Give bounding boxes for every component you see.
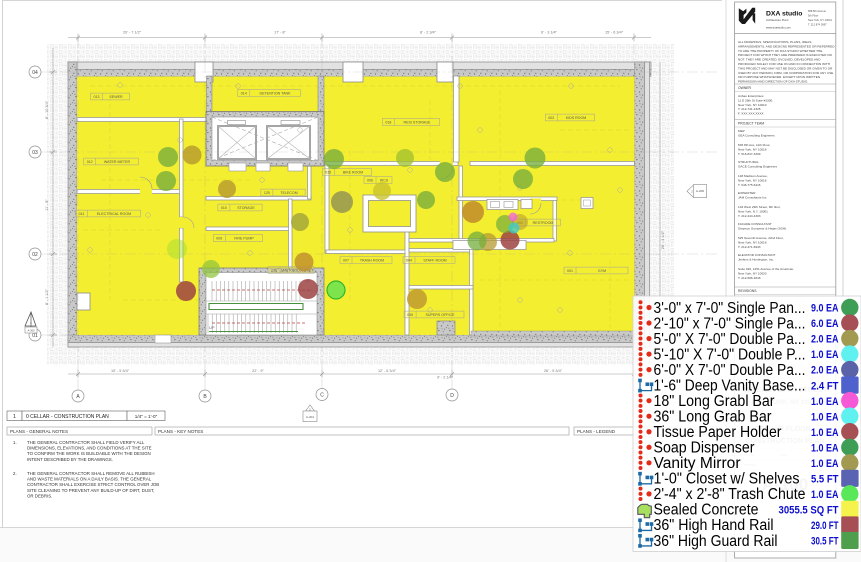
svg-text:FIRE PUMP: FIRE PUMP [234, 236, 254, 240]
svg-text:SITE CLEANING TO PREVENT ANY B: SITE CLEANING TO PREVENT ANY BUILD-UP OF… [27, 488, 154, 493]
svg-text:29.0 FT: 29.0 FT [811, 520, 839, 532]
svg-text:A-200: A-200 [696, 189, 705, 193]
svg-text:TRASH ROOM: TRASH ROOM [360, 258, 384, 262]
svg-text:26' - 5 3/4": 26' - 5 3/4" [544, 369, 563, 373]
svg-text:6'-0" X 7'-0" Double Pa...: 6'-0" X 7'-0" Double Pa... [654, 362, 806, 379]
svg-text:Vanity Mirror: Vanity Mirror [654, 455, 741, 472]
svg-text:Suite 920, 1251 Avenue of the: Suite 920, 1251 Avenue of the Americas, [738, 267, 794, 271]
svg-text:Anbau Enterprises: Anbau Enterprises [738, 94, 764, 98]
svg-text:PLANS - GENERAL NOTES: PLANS - GENERAL NOTES [10, 429, 68, 434]
svg-text:WCS: WCS [380, 178, 389, 182]
svg-text:PLANS - KEY NOTES: PLANS - KEY NOTES [158, 429, 203, 434]
svg-text:1.0 EA: 1.0 EA [811, 489, 839, 501]
svg-text:007: 007 [343, 258, 349, 262]
svg-text:Soap Dispenser: Soap Dispenser [654, 440, 755, 457]
svg-text:11' - 8": 11' - 8" [45, 199, 49, 211]
svg-text:014: 014 [241, 91, 247, 95]
svg-text:GYM: GYM [598, 269, 606, 273]
svg-text:1.0 EA: 1.0 EA [811, 442, 839, 454]
svg-text:525 Seventh Avenue, 22nd Floor: 525 Seventh Avenue, 22nd Floor, [738, 236, 784, 240]
svg-text:8' - 2 3/4": 8' - 2 3/4" [420, 31, 437, 35]
svg-text:018: 018 [385, 120, 391, 124]
svg-text:5th Floor: 5th Floor [808, 14, 818, 18]
svg-text:THE GENERAL CONTRACTOR SHALL R: THE GENERAL CONTRACTOR SHALL REMOVE ALL … [27, 471, 155, 476]
svg-text:868 8th Avenue: 868 8th Avenue [808, 9, 827, 13]
svg-text:STRUCTURAL: STRUCTURAL [738, 160, 759, 164]
svg-text:New York, NY 10001: New York, NY 10001 [808, 18, 832, 22]
svg-text:www.dxastudio.com: www.dxastudio.com [766, 26, 791, 30]
svg-text:2.0 EA: 2.0 EA [811, 334, 839, 346]
svg-text:22' - 9": 22' - 9" [252, 369, 264, 373]
svg-text:PROJECT TEAM: PROJECT TEAM [738, 122, 764, 126]
svg-text:ARRANGEMENTS, AND DESIGNS REPR: ARRANGEMENTS, AND DESIGNS REPRESENTED OR… [738, 44, 835, 48]
svg-text:STAFF ROOM: STAFF ROOM [423, 258, 446, 262]
svg-text:1.0 EA: 1.0 EA [811, 349, 839, 361]
svg-text:T. 212-741-1325: T. 212-741-1325 [738, 107, 761, 111]
svg-text:STORAGE: STORAGE [237, 206, 255, 210]
svg-text:CONTRACTOR SHALL EXERCISE STRI: CONTRACTOR SHALL EXERCISE STRICT CONTROL… [27, 482, 159, 487]
svg-text:04: 04 [32, 70, 38, 76]
svg-text:PLANS - LEGEND: PLANS - LEGEND [577, 429, 616, 434]
svg-text:004: 004 [406, 258, 412, 262]
svg-text:INTENT DESCRIBED BY THE DRAWIN: INTENT DESCRIBED BY THE DRAWINGS. [27, 457, 113, 462]
svg-text:36" Long Grab Bar: 36" Long Grab Bar [654, 409, 772, 426]
svg-text:010: 010 [221, 206, 227, 210]
svg-text:104 West 29th Street, 9th floo: 104 West 29th Street, 9th floor, [738, 205, 781, 209]
svg-text:2.: 2. [13, 471, 17, 476]
svg-text:10' - 5 3/4": 10' - 5 3/4" [111, 369, 130, 373]
svg-text:New York, NY 10020: New York, NY 10020 [738, 271, 767, 275]
svg-text:THE GENERAL CONTRACTOR SHALL F: THE GENERAL CONTRACTOR SHALL FIELD VERIF… [27, 440, 145, 445]
svg-text:DIMENSIONS, ELEVATIONS, AND CO: DIMENSIONS, ELEVATIONS, AND CONDITIONS A… [27, 446, 152, 451]
svg-text:9' - 2 1/4": 9' - 2 1/4" [437, 376, 454, 380]
svg-text:T. 516-847-3309: T. 516-847-3309 [738, 152, 761, 156]
svg-text:USED BY ANY PERSON, FIRM, OR C: USED BY ANY PERSON, FIRM, OR CORPORATION… [738, 71, 833, 75]
svg-text:WATER METER: WATER METER [104, 160, 131, 164]
svg-text:T. 212-244-4303: T. 212-244-4303 [738, 214, 761, 218]
svg-text:TELECOM: TELECOM [280, 191, 297, 195]
svg-text:20' - 7 1/2": 20' - 7 1/2" [123, 31, 142, 35]
svg-text:MEP: MEP [738, 129, 745, 133]
svg-text:015: 015 [325, 170, 331, 174]
svg-text:01: 01 [32, 333, 38, 339]
svg-text:2.0 EA: 2.0 EA [811, 365, 839, 377]
svg-text:6.0 EA: 6.0 EA [811, 318, 839, 330]
svg-text:11 E 26th St Suite #1300,: 11 E 26th St Suite #1300, [738, 98, 773, 102]
svg-text:REVISIONS: REVISIONS [738, 289, 757, 293]
svg-text:Simpson Gumpertz & Heger (SGH): Simpson Gumpertz & Heger (SGH) [738, 226, 786, 230]
svg-text:PROJECT FOR WHICH THEY ARE PRE: PROJECT FOR WHICH THEY ARE PREPARED IS E… [738, 53, 833, 57]
svg-text:2.4 FT: 2.4 FT [811, 380, 839, 392]
svg-text:8' - 1 1/2": 8' - 1 1/2" [45, 288, 49, 305]
svg-text:RESTROOM: RESTROOM [533, 221, 554, 225]
svg-text:TO CONFIRM THE WORK IS BUILDAB: TO CONFIRM THE WORK IS BUILDABLE WITH TH… [27, 451, 151, 456]
svg-text:SUPERS OFFICE: SUPERS OFFICE [426, 313, 456, 317]
svg-text:1.: 1. [13, 440, 17, 445]
svg-text:T. 212 874 0567: T. 212 874 0567 [808, 23, 827, 27]
svg-text:UP: UP [209, 325, 215, 330]
svg-text:A-201: A-201 [306, 415, 315, 419]
svg-text:SEWER: SEWER [109, 95, 123, 99]
svg-text:001: 001 [567, 269, 573, 273]
svg-text:1.0 EA: 1.0 EA [811, 411, 839, 423]
svg-text:KIDS ROOM: KIDS ROOM [566, 116, 587, 120]
svg-text:OWNER: OWNER [738, 86, 752, 90]
svg-text:OR PURPOSE WHATSOEVER. EXCEPT: OR PURPOSE WHATSOEVER. EXCEPT UPON WRITT… [738, 75, 820, 79]
svg-text:12' - 6 3/4": 12' - 6 3/4" [378, 369, 397, 373]
svg-text:2'-4" x 2'-8" Trash Chute: 2'-4" x 2'-8" Trash Chute [654, 486, 806, 503]
svg-text:125: 125 [264, 191, 270, 195]
svg-text:03: 03 [32, 150, 38, 156]
svg-text:Jenkins & Huntington, Inc.: Jenkins & Huntington, Inc. [738, 257, 774, 261]
svg-text:26' - 4 1/2": 26' - 4 1/2" [661, 230, 665, 249]
svg-text:A-300: A-300 [28, 329, 35, 333]
svg-text:011: 011 [79, 212, 85, 216]
svg-text:ELECTRICAL ROOM: ELECTRICAL ROOM [97, 212, 131, 216]
svg-text:5'-10" X 7'-0" Double P...: 5'-10" X 7'-0" Double P... [654, 346, 806, 363]
svg-text:1'-6" Deep Vanity Base...: 1'-6" Deep Vanity Base... [654, 377, 806, 394]
svg-text:006: 006 [367, 178, 373, 182]
svg-text:New York, NY 10016: New York, NY 10016 [738, 178, 767, 182]
svg-text:OR DEBRIS.: OR DEBRIS. [27, 493, 52, 498]
svg-text:3055.5 SQ FT: 3055.5 SQ FT [779, 504, 839, 516]
svg-text:RESI STORAGE: RESI STORAGE [404, 120, 431, 124]
svg-text:2'-10" x 7'-0" Single Pa...: 2'-10" x 7'-0" Single Pa... [654, 315, 806, 332]
svg-text:New York, NY 10018: New York, NY 10018 [738, 240, 767, 244]
svg-text:3'-0" x 7'-0" Single Pan...: 3'-0" x 7'-0" Single Pan... [654, 300, 806, 317]
svg-text:545 8th Ave, 11th Floor,: 545 8th Ave, 11th Floor, [738, 143, 771, 147]
svg-text:New York, NY 10010: New York, NY 10010 [738, 103, 767, 107]
svg-text:DXA studio: DXA studio [766, 11, 802, 18]
svg-text:JAM Consultants Inc: JAM Consultants Inc [738, 195, 767, 199]
svg-text:Tissue Paper Holder: Tissue Paper Holder [654, 424, 782, 441]
svg-text:PERMISSION AND DIRECTION OF DX: PERMISSION AND DIRECTION OF DXA STUDIO. [738, 80, 808, 84]
svg-text:02: 02 [32, 252, 38, 258]
svg-text:Sealed Concrete: Sealed Concrete [654, 502, 759, 519]
svg-text:002: 002 [548, 116, 554, 120]
svg-text:148 Madison Avenue,: 148 Madison Avenue, [738, 174, 768, 178]
svg-text:C: C [320, 392, 324, 398]
svg-text:9.0 EA: 9.0 EA [811, 303, 839, 315]
svg-text:1: 1 [13, 414, 16, 420]
svg-text:New York, NY 10018: New York, NY 10018 [738, 147, 767, 151]
svg-text:T. 212-271-6933: T. 212-271-6933 [738, 245, 761, 249]
svg-text:36" High Hand Rail: 36" High Hand Rail [654, 517, 774, 534]
svg-text:1.0 EA: 1.0 EA [811, 396, 839, 408]
svg-text:BIKE ROOM: BIKE ROOM [343, 170, 363, 174]
svg-text:T. 212-696-1818: T. 212-696-1818 [738, 276, 761, 280]
svg-text:8' - 10 3/4": 8' - 10 3/4" [45, 100, 49, 119]
svg-text:36" High Guard Rail: 36" High Guard Rail [654, 533, 778, 550]
svg-text:1'-0" Closet w/ Shelves: 1'-0" Closet w/ Shelves [654, 471, 800, 488]
svg-text:FACADE CONSULTANT: FACADE CONSULTANT [738, 222, 772, 226]
svg-text:ALL DRAWINGS, SPECIFICATIONS,: ALL DRAWINGS, SPECIFICATIONS, PLANS, IDE… [738, 40, 812, 44]
svg-text:THIS PROJECT AND MAY NOT BE DI: THIS PROJECT AND MAY NOT BE DISCLOSED OR… [738, 66, 833, 70]
svg-text:TO ARE THE PROPERTY OF DXA STU: TO ARE THE PROPERTY OF DXA STUDIO WHETHE… [738, 49, 822, 53]
svg-text:6' - 3 1/4": 6' - 3 1/4" [541, 31, 558, 35]
svg-text:ELEVATOR CONSULTANT: ELEVATOR CONSULTANT [738, 253, 775, 257]
svg-text:5'-0" X 7'-0" Double Pa...: 5'-0" X 7'-0" Double Pa... [654, 331, 806, 348]
svg-text:18" Long Grabl Bar: 18" Long Grabl Bar [654, 393, 775, 410]
svg-text:EXPEDITER: EXPEDITER [738, 191, 756, 195]
svg-text:NOT. THEY ARE CREATED, EVOLVE: NOT. THEY ARE CREATED, EVOLVED, DEVELOPE… [738, 58, 821, 62]
svg-text:New York, N.Y. 10001: New York, N.Y. 10001 [738, 209, 768, 213]
svg-text:GACE Consulting Engineers: GACE Consulting Engineers [738, 164, 777, 168]
svg-text:136: 136 [271, 268, 277, 272]
svg-text:15' - 6 3/4": 15' - 6 3/4" [605, 31, 624, 35]
svg-text:0 CELLAR - CONSTRUCTION PLAN: 0 CELLAR - CONSTRUCTION PLAN [26, 414, 109, 420]
svg-text:AND WASTE MATERIALS ON A DAILY: AND WASTE MATERIALS ON A DAILY BASIS. TH… [27, 477, 152, 482]
svg-text:009: 009 [216, 236, 222, 240]
svg-text:5.5 FT: 5.5 FT [811, 473, 839, 485]
svg-text:1/4" = 1'-0": 1/4" = 1'-0" [135, 414, 158, 419]
svg-text:17' - 8": 17' - 8" [274, 31, 286, 35]
svg-text:1.0 EA: 1.0 EA [811, 427, 839, 439]
svg-text:1.0 EA: 1.0 EA [811, 458, 839, 470]
svg-text:013: 013 [94, 95, 100, 99]
svg-text:DETENTION TANK: DETENTION TANK [259, 91, 291, 95]
svg-text:Architecture PLLC: Architecture PLLC [766, 18, 789, 22]
svg-text:012: 012 [87, 160, 93, 164]
svg-text:D: D [450, 393, 454, 399]
svg-text:T. 646-775-6415: T. 646-775-6415 [738, 183, 761, 187]
svg-text:GEA Consulting Engineers: GEA Consulting Engineers [738, 133, 775, 137]
svg-text:005: 005 [407, 313, 413, 317]
svg-text:30.5 FT: 30.5 FT [811, 536, 839, 548]
svg-text:PRODUCED SOLELY FOR USE ON AND: PRODUCED SOLELY FOR USE ON AND IN CONNEC… [738, 62, 830, 66]
svg-text:F. XXX.XXX.XXXX: F. XXX.XXX.XXXX [738, 112, 764, 116]
